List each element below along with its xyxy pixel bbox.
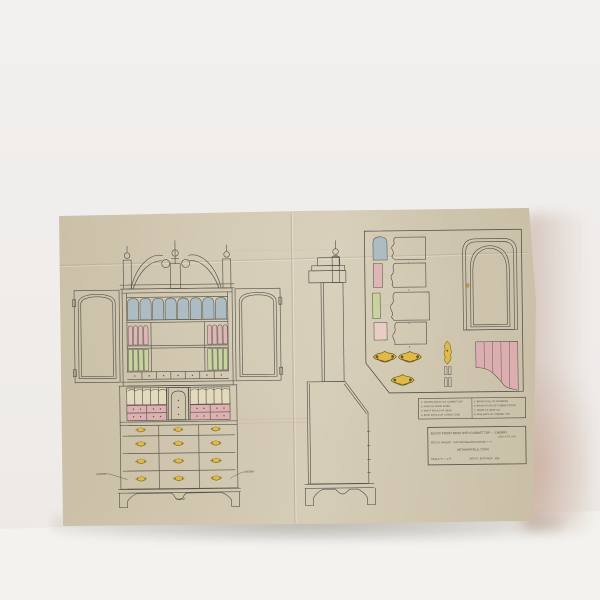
glazed-panes — [127, 297, 226, 320]
drawing-sheet: CHERRY CHERRY FRONT — [0, 0, 600, 600]
compartment-side — [151, 322, 152, 371]
right-cabinet-door — [235, 288, 283, 381]
title-scale: SCALE ¾" = 1'-0" — [431, 457, 452, 461]
escutcheon-plate — [444, 341, 452, 364]
legend-item: 8- PINE BACK OF CABINET TOP — [474, 413, 510, 416]
legend-item: 1- CROWN MOULD OF CABINET TOP — [421, 400, 463, 404]
desk-interior — [120, 385, 237, 422]
measured-drawing: CHERRY CHERRY FRONT — [0, 0, 600, 600]
photo-scene: CHERRY CHERRY FRONT — [0, 0, 600, 600]
drawer-pulls — [135, 426, 222, 481]
moulding-samples: 1 2 3 4 — [372, 236, 430, 349]
front-labels: CHERRY CHERRY FRONT — [96, 470, 255, 502]
legend-item: 6- BRASS PLATE OF CABINET DOOR — [474, 404, 516, 408]
title-line-1: BLOCK FRONT DESK WITH CABINET TOP - - CH… — [431, 430, 508, 435]
title-block: BLOCK FRONT DESK WITH CABINET TOP - - CH… — [428, 426, 526, 465]
front-elevation: CHERRY CHERRY FRONT — [72, 239, 285, 508]
legend-item: 3- WAIST MOULD OF DESK — [421, 409, 452, 412]
label-left: CHERRY — [96, 472, 108, 476]
lower-case — [118, 421, 241, 508]
cabinet-door-detail — [462, 238, 517, 330]
legend-item: 5- BRASS PULL OF DRAWERS — [474, 400, 509, 403]
pink-pilasters — [128, 325, 227, 345]
hinge-details — [444, 367, 451, 387]
label-front: FRONT — [176, 497, 186, 501]
legend-item: 2- ARCH OF DOOR PANEL — [421, 405, 451, 408]
back-board-detail — [476, 341, 519, 391]
upper-case — [118, 288, 237, 386]
title-line-3: WETHERSFIELD, CONN. — [457, 447, 490, 451]
title-credit: JACK R. BUCHNER · DEL. — [469, 456, 501, 460]
label-right: CHERRY — [243, 470, 255, 474]
detail-number-4: 4 — [409, 346, 411, 349]
title-line-2: SOUTH PARLOR · CAPTAIN BELDEN HOUSE + + … — [431, 440, 493, 445]
detail-number-2: 2 — [408, 289, 410, 292]
door-escutcheon — [467, 283, 469, 287]
legend-box: 1- CROWN MOULD OF CABINET TOP 2- ARCH OF… — [418, 397, 525, 419]
detail-panel: 1 2 3 4 — [364, 229, 523, 393]
legend-item: 7- HINGE OF DESK LID — [474, 409, 500, 412]
green-pilasters — [128, 348, 227, 371]
left-cabinet-door — [72, 290, 120, 383]
prospect-door — [168, 387, 188, 420]
legend-item: 4- BASE MOULD OF LOWER CASE — [421, 413, 460, 416]
brass-hardware-details — [373, 341, 452, 387]
title-line-1b: CIRCA 1750-1780 — [498, 435, 517, 438]
small-drawer-knobs — [134, 374, 222, 376]
